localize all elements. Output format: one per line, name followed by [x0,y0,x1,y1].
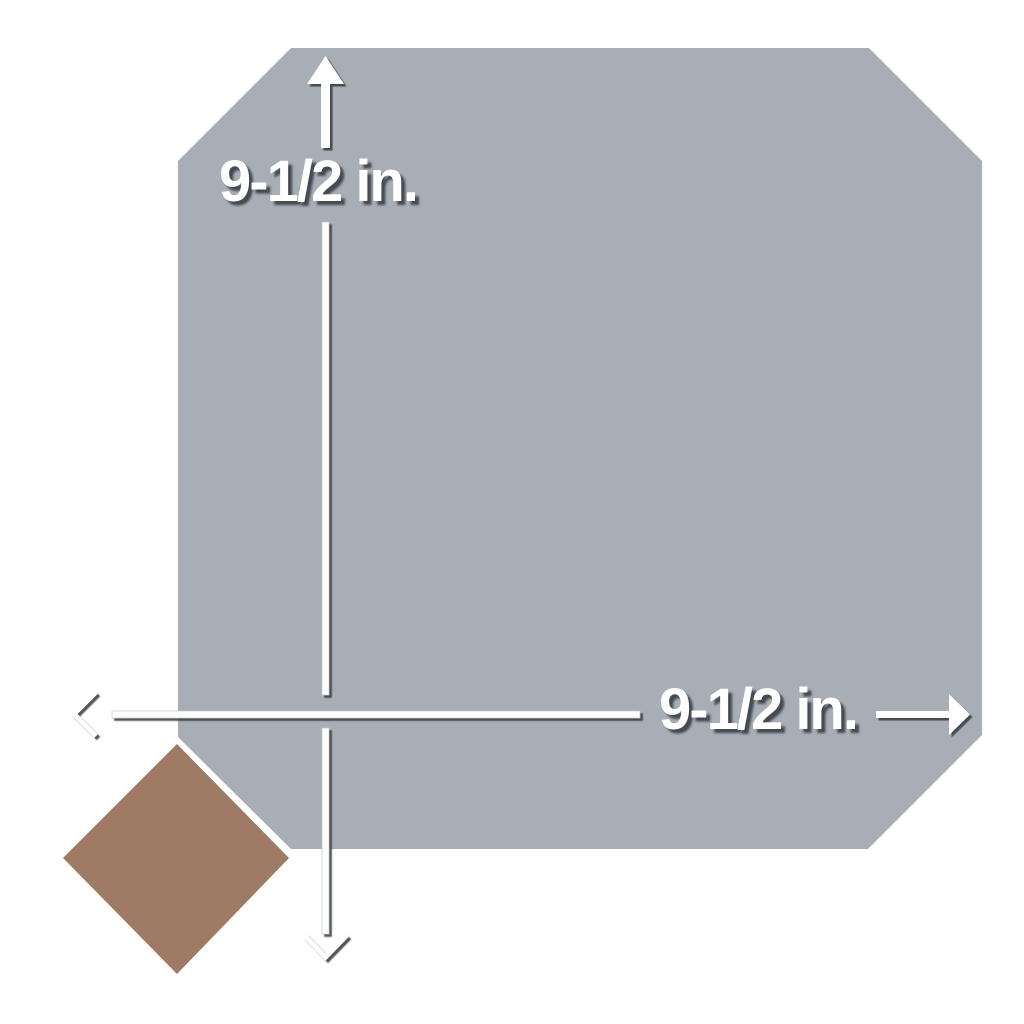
horizontal-dimension-label: 9-1/2 in. [659,681,857,739]
vertical-dimension-label: 9-1/2 in. [219,153,417,211]
horizontal-dimension-line [112,711,640,718]
chevron-down-icon [304,935,347,957]
vertical-arrow-shaft [321,82,330,148]
horizontal-arrow-shaft [876,711,949,718]
chevron-left-icon [74,692,96,736]
vertical-extension-line [322,728,329,934]
diagram-canvas [0,0,1024,1024]
tile-dimension-diagram: 9-1/2 in. 9-1/2 in. [0,0,1024,1024]
vertical-dimension-line [322,222,329,695]
